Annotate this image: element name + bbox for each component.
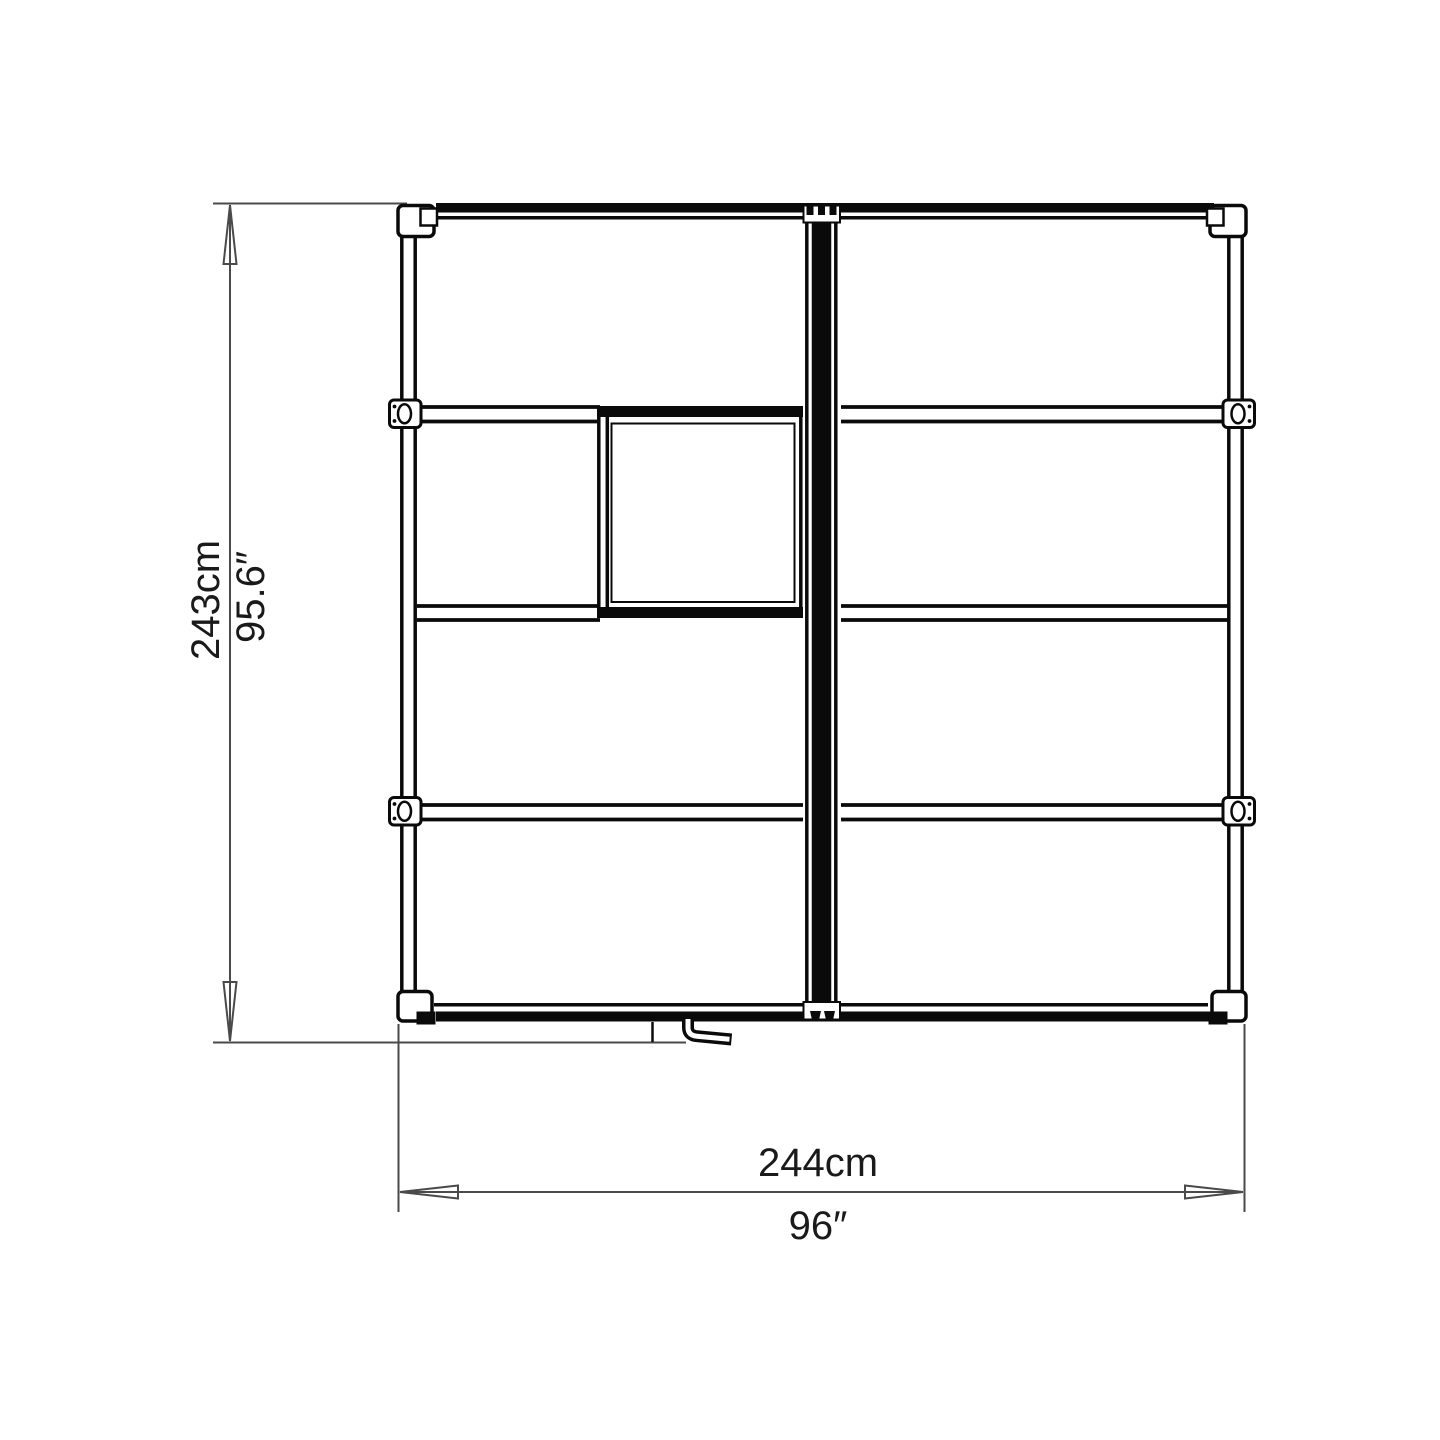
corner-tab	[417, 1012, 436, 1025]
vent-inner-line	[612, 424, 795, 603]
ridge-cap-top-tab	[818, 207, 825, 216]
corner-connector-bottom-right	[1209, 992, 1247, 1025]
frame-right-rail	[1229, 233, 1242, 997]
height-dimension: 243cm 95.6″	[184, 204, 686, 1043]
bracket-screw	[393, 405, 397, 409]
width-label-metric: 244cm	[758, 1141, 878, 1185]
corner-tab	[1209, 1012, 1228, 1025]
plan-drawing-svg: 243cm 95.6″ 244cm 96″	[0, 0, 1440, 1440]
ridge-cap-top-tab	[807, 207, 814, 216]
frame-left-rail	[402, 233, 415, 997]
corner-connector-top-right	[1207, 206, 1246, 237]
bracket-screw	[1248, 419, 1252, 423]
corner-step	[421, 209, 438, 226]
height-label-imperial: 95.6″	[229, 551, 273, 643]
corner-step	[1207, 209, 1224, 226]
greenhouse-plan-diagram: 243cm 95.6″ 244cm 96″	[0, 0, 1440, 1440]
ridge-cap-bottom	[804, 1002, 841, 1020]
bracket-screw	[1248, 802, 1252, 806]
bracket-screw	[1248, 405, 1252, 409]
door-handle	[653, 1019, 732, 1042]
center-ridge-beam	[803, 212, 841, 1012]
corner-connector-top-left	[398, 206, 437, 237]
bracket-screw	[393, 817, 397, 821]
corner-connector-bottom-left	[398, 992, 436, 1025]
ridge-cap-top	[804, 206, 841, 223]
roof-vent-window	[597, 406, 810, 618]
crossbar-middle-right	[838, 606, 1228, 620]
bracket-screw	[1248, 817, 1252, 821]
greenhouse-frame	[390, 206, 1255, 1043]
vent-left-edge	[599, 406, 608, 618]
bracket-screw	[393, 419, 397, 423]
side-bracket-right-lower	[1223, 798, 1255, 826]
width-label-imperial: 96″	[789, 1204, 848, 1248]
side-bracket-left-upper	[390, 400, 422, 428]
crossbar-upper-right	[838, 407, 1228, 422]
width-dimension: 244cm 96″	[399, 1024, 1245, 1248]
crossbar-middle-left	[417, 606, 600, 620]
crossbar-upper-left	[417, 407, 600, 422]
side-bracket-left-lower	[390, 798, 422, 826]
height-label-metric: 243cm	[184, 540, 228, 660]
side-bracket-right-upper	[1223, 400, 1255, 428]
bracket-screw	[393, 802, 397, 806]
ridge-cap-top-tab	[830, 207, 837, 216]
ridge-cap-bottom-plate	[804, 1002, 841, 1020]
